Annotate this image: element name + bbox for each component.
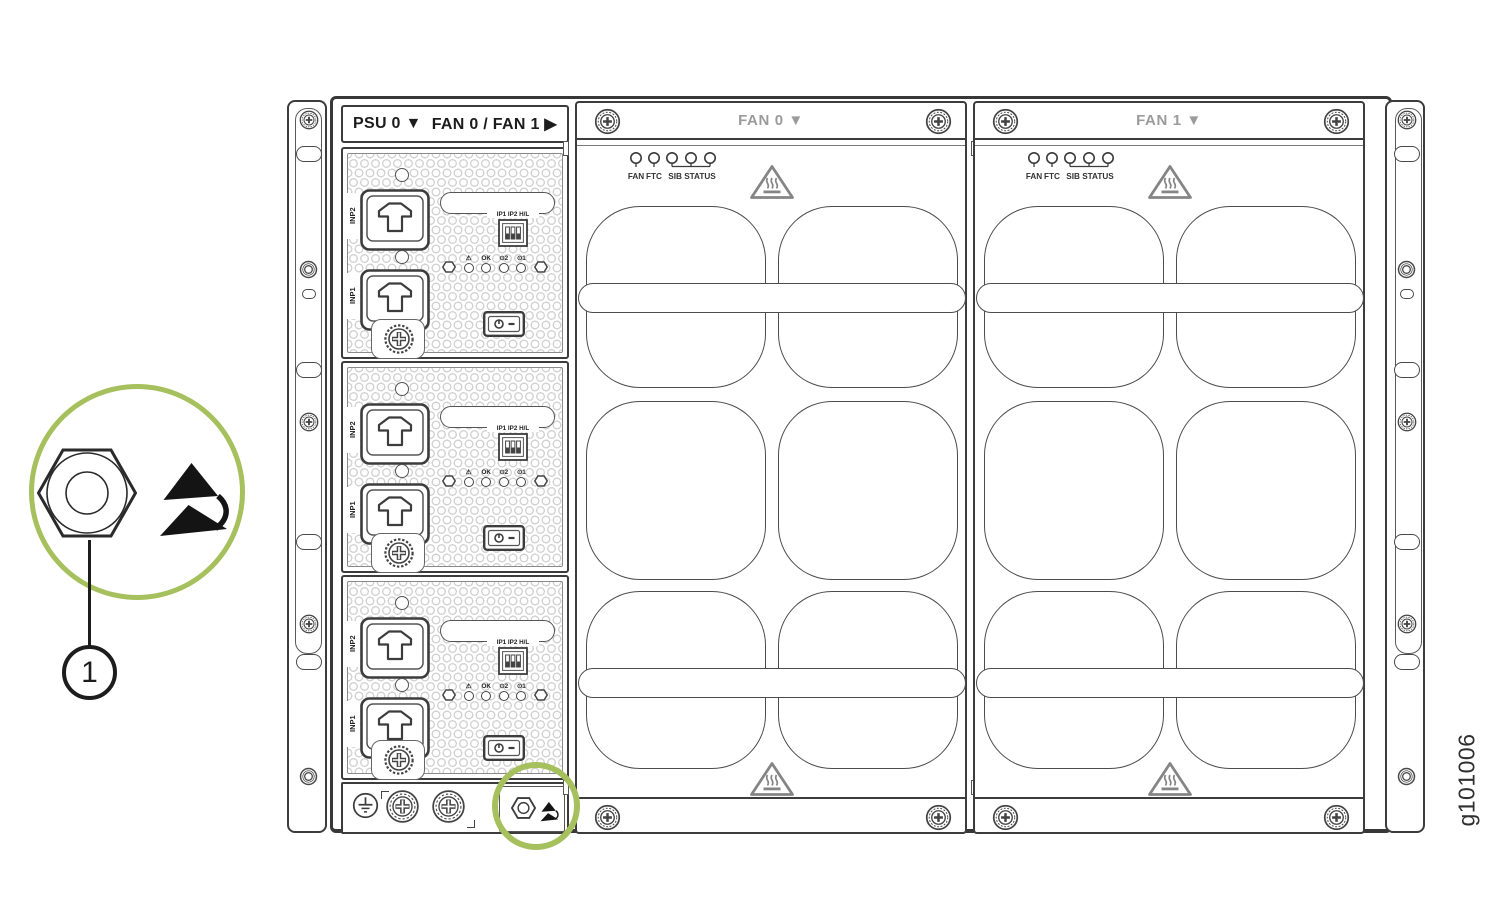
dip-switch [498,219,528,247]
psu-led-row: ⚠ OK ⊙2 ⊙1 [442,246,548,273]
fan-led-label: FAN [1026,172,1042,181]
captive-screw-icon [385,789,420,824]
left-mounting-bracket [287,100,327,833]
sib-status-led-label: SIB STATUS [668,172,716,181]
screw-hole [395,596,409,610]
led-dot [516,263,526,273]
fan-tray-handle [976,668,1364,698]
fan-tray-handle [976,283,1364,313]
fan-opening [586,401,766,580]
esd-warning-icon [158,460,230,538]
led-dot [481,691,491,701]
psu-header-label: PSU 0 ▼ [353,115,422,133]
captive-screw-icon [925,804,952,831]
power-inlet-inp2 [360,617,430,679]
fan-direction-label: FAN 0 / FAN 1 ▶ [432,114,557,134]
fan1-top-bar: FAN 1 ▼ [975,103,1363,140]
callout-number: 1 [62,645,117,700]
captive-screw-icon [594,804,621,831]
screw-hole [395,250,409,264]
bracket-rivet-icon [1397,767,1416,786]
bracket-slot [1394,534,1420,550]
bracket-slot [296,362,322,378]
led-input1: ⊙1 [516,255,526,273]
led-dot [499,477,509,487]
led-dot [464,477,474,487]
hex-standoff-icon [442,689,456,701]
psu-module-2: INP2 IP1 IP2 H/L ⚠ OK ⊙2 ⊙1 INP1 [341,361,569,573]
led-dot [516,477,526,487]
bracket-inner-outline [295,108,322,654]
led-dot [464,691,474,701]
fan0-top-bar: FAN 0 ▼ [577,103,965,140]
hot-surface-icon [749,760,795,798]
psu-section-header: PSU 0 ▼ FAN 0 / FAN 1 ▶ [341,105,569,143]
dip-switch-label: IP1 IP2 H/L [487,425,539,432]
screw-hole [395,464,409,478]
bracket-slot [296,534,322,550]
bracket-rivet-icon [299,260,318,279]
tray-edge-line [975,145,1363,146]
fan-opening [984,401,1164,580]
captive-screw-icon [1323,804,1350,831]
dip-switch [498,647,528,675]
power-switch [483,311,525,337]
esd-point-highlight-ring [492,762,580,850]
fan-tray-1: FAN 1 ▼ FAN FTC SIB STATUS [973,101,1365,834]
led-warning: ⚠ [464,469,474,487]
hot-surface-icon [1147,163,1193,201]
inp1-label: INP1 [346,701,360,747]
led-input1: ⊙1 [516,683,526,701]
bracket-slot [1394,362,1420,378]
led-input2: ⊙2 [499,255,509,273]
inp1-label: INP1 [346,487,360,533]
fan0-bottom-bar [577,797,965,832]
bracket-small-slot [1400,289,1414,299]
captive-screw-icon [431,789,466,824]
hex-standoff-icon [534,689,548,701]
led-dot [464,263,474,273]
captive-screw-icon [992,108,1019,135]
fan-opening [778,401,958,580]
led-input1: ⊙1 [516,469,526,487]
captive-screw-icon [925,108,952,135]
latch-tab [563,141,569,156]
grounding-nut-icon [37,448,137,538]
psu-led-row: ⚠ OK ⊙2 ⊙1 [442,460,548,487]
bracket-rivet-icon [299,767,318,786]
bracket-screw-icon [299,412,319,432]
fan-tray-0: FAN 0 ▼ FAN FTC SIB STATUS [575,101,967,834]
screw-hole [395,168,409,182]
led-ok: OK [481,683,491,701]
corner-mark [467,820,475,828]
led-dot [481,477,491,487]
power-inlet-inp2 [360,403,430,465]
fan-led-cluster: FAN FTC SIB STATUS [622,150,732,184]
led-warning: ⚠ [464,255,474,273]
fan0-title: FAN 0 ▼ [738,112,804,129]
led-input2: ⊙2 [499,469,509,487]
figure-code: g101006 [1454,733,1481,826]
fan-tray-handle [578,283,966,313]
fan1-bottom-bar [975,797,1363,832]
inp2-label: INP2 [346,407,360,453]
right-mounting-bracket [1385,100,1425,833]
tray-edge-line [577,145,965,146]
thumbscrew-icon [383,744,415,776]
power-inlet-inp2 [360,189,430,251]
hex-standoff-icon [534,261,548,273]
captive-screw-icon [992,804,1019,831]
psu-module-3: INP2 IP1 IP2 H/L ⚠ OK ⊙2 ⊙1 INP1 [341,575,569,780]
screw-hole [395,678,409,692]
bracket-screw-icon [299,614,319,634]
rear-chassis-diagram: 1 PSU 0 ▼ FAN 0 / FAN 1 ▶ INP2 IP1 IP2 H… [0,0,1500,900]
hot-surface-icon [749,163,795,201]
fan-tray-handle [578,668,966,698]
psu-module-1: INP2 IP1 IP2 H/L ⚠ OK ⊙2 ⊙1 INP1 [341,147,569,359]
hex-standoff-icon [442,261,456,273]
bracket-slot [296,146,322,162]
bracket-rivet-icon [1397,260,1416,279]
dip-switch [498,433,528,461]
led-dot [499,691,509,701]
callout-leader-line [88,540,91,646]
bracket-slot [1394,146,1420,162]
dip-switch-label: IP1 IP2 H/L [487,639,539,646]
hex-standoff-icon [442,475,456,487]
captive-screw-icon [594,108,621,135]
led-dot [499,263,509,273]
led-warning: ⚠ [464,683,474,701]
led-ok: OK [481,255,491,273]
fan1-title: FAN 1 ▼ [1136,112,1202,129]
bracket-screw-icon [1397,614,1417,634]
bracket-inner-outline [1395,108,1422,654]
bracket-small-slot [302,289,316,299]
bracket-screw-icon [1397,412,1417,432]
fan-led-cluster: FAN FTC SIB STATUS [1020,150,1130,184]
ftc-led-label: FTC [646,172,662,181]
led-dot [516,691,526,701]
bracket-screw-icon [1397,110,1417,130]
power-switch [483,525,525,551]
fan-led-label: FAN [628,172,644,181]
captive-screw-icon [1323,108,1350,135]
sib-status-led-label: SIB STATUS [1066,172,1114,181]
screw-hole [395,382,409,396]
bracket-screw-icon [299,110,319,130]
hex-standoff-icon [534,475,548,487]
fan-opening [1176,401,1356,580]
thumbscrew-icon [383,537,415,569]
power-switch [483,735,525,761]
led-ok: OK [481,469,491,487]
hot-surface-icon [1147,760,1193,798]
dip-switch-label: IP1 IP2 H/L [487,211,539,218]
inp2-label: INP2 [346,621,360,667]
ground-terminal-icon [352,792,379,819]
led-dot [481,263,491,273]
bracket-slot [1394,654,1420,670]
psu-led-row: ⚠ OK ⊙2 ⊙1 [442,674,548,701]
chassis-body: PSU 0 ▼ FAN 0 / FAN 1 ▶ INP2 IP1 IP2 H/L… [330,96,1392,833]
led-input2: ⊙2 [499,683,509,701]
thumbscrew-icon [383,323,415,355]
inp2-label: INP2 [346,193,360,239]
bracket-slot [296,654,322,670]
inp1-label: INP1 [346,273,360,319]
ftc-led-label: FTC [1044,172,1060,181]
